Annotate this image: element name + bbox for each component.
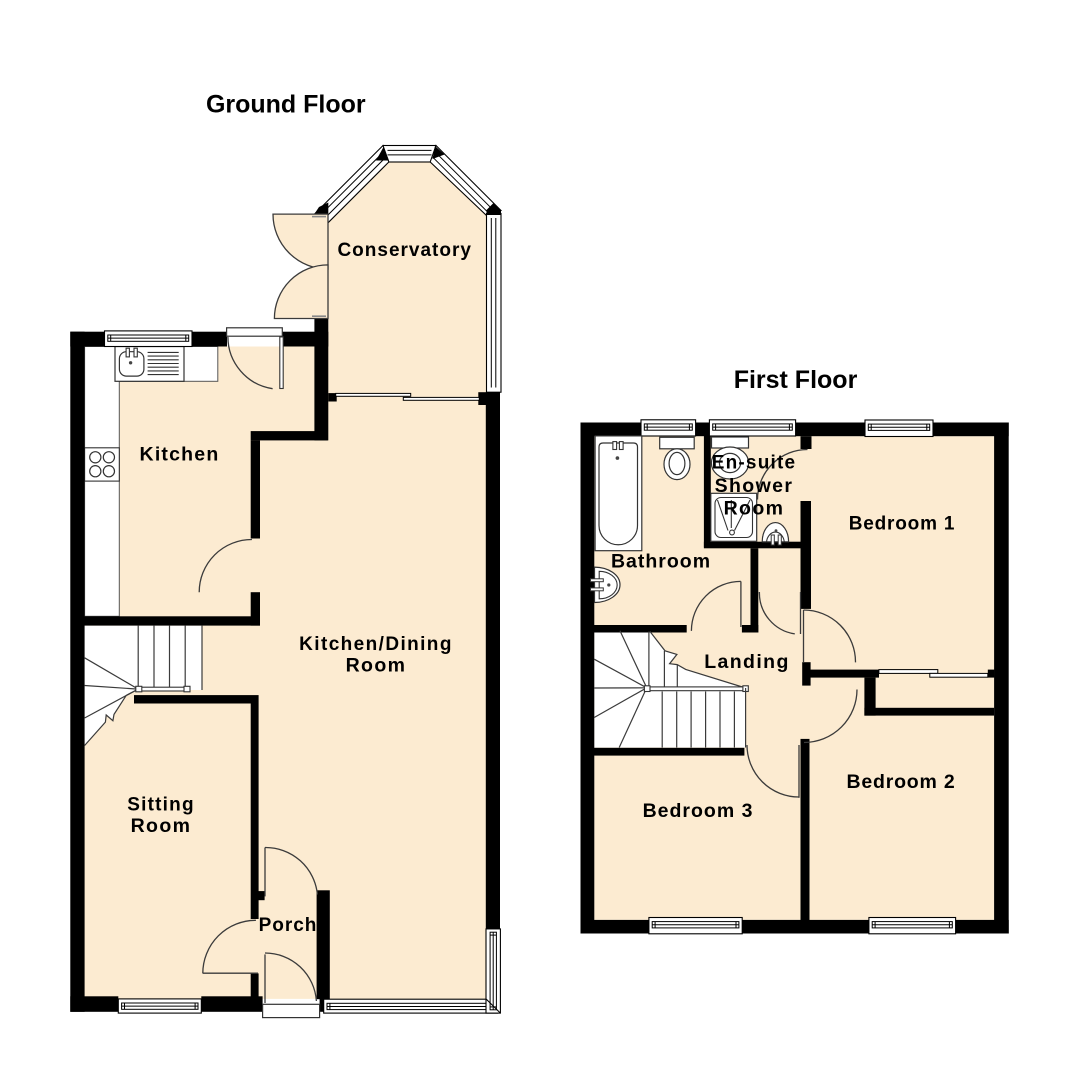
svg-text:Porch: Porch: [259, 915, 318, 936]
svg-text:Landing: Landing: [704, 651, 790, 673]
svg-text:Sitting: Sitting: [127, 795, 195, 816]
svg-text:Bedroom 3: Bedroom 3: [643, 800, 754, 822]
svg-text:Kitchen/Dining: Kitchen/Dining: [299, 634, 453, 655]
svg-text:Conservatory: Conservatory: [337, 240, 472, 261]
svg-text:Shower: Shower: [715, 475, 794, 497]
svg-text:Ground Floor: Ground Floor: [206, 91, 366, 119]
svg-text:Bathroom: Bathroom: [611, 551, 711, 573]
svg-text:Kitchen: Kitchen: [140, 444, 220, 466]
svg-text:Bedroom 1: Bedroom 1: [849, 514, 955, 535]
svg-text:Room: Room: [724, 498, 785, 520]
svg-text:Bedroom 2: Bedroom 2: [846, 771, 955, 793]
svg-text:En-suite: En-suite: [712, 453, 797, 474]
svg-text:First Floor: First Floor: [734, 366, 858, 394]
svg-text:Room: Room: [346, 655, 407, 677]
svg-text:Room: Room: [131, 815, 192, 837]
